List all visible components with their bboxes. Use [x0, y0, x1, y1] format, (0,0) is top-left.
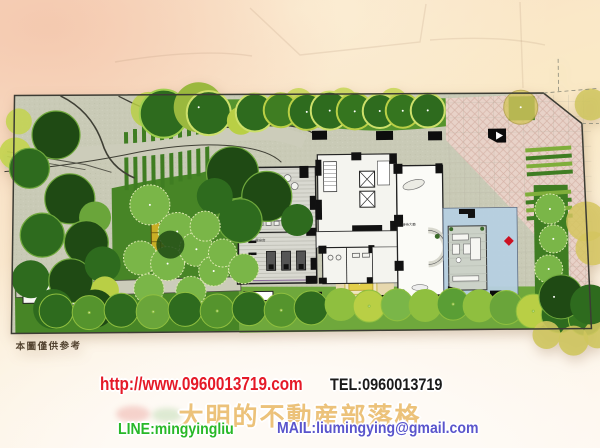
telephone-text: TEL:0960013719 — [330, 375, 442, 395]
faded-watermark — [116, 406, 150, 422]
lobby — [393, 163, 446, 303]
elevator-core — [315, 152, 397, 232]
photo-of-site-plan: 交誼廳 健身房 — [0, 0, 600, 448]
email-text: MAIL:liumingying@gmail.com — [277, 420, 478, 438]
website-url-text: http://www.0960013719.com — [100, 374, 303, 395]
gym-label: 健身房 — [255, 237, 266, 242]
water-terrace — [443, 207, 518, 300]
disclaimer-text: 本圖僅供参考 — [16, 340, 82, 353]
line-id-text: LINE:mingyingliu — [118, 421, 234, 439]
lobby-label: 接待大廳 — [402, 222, 416, 227]
service-rooms — [318, 245, 374, 284]
